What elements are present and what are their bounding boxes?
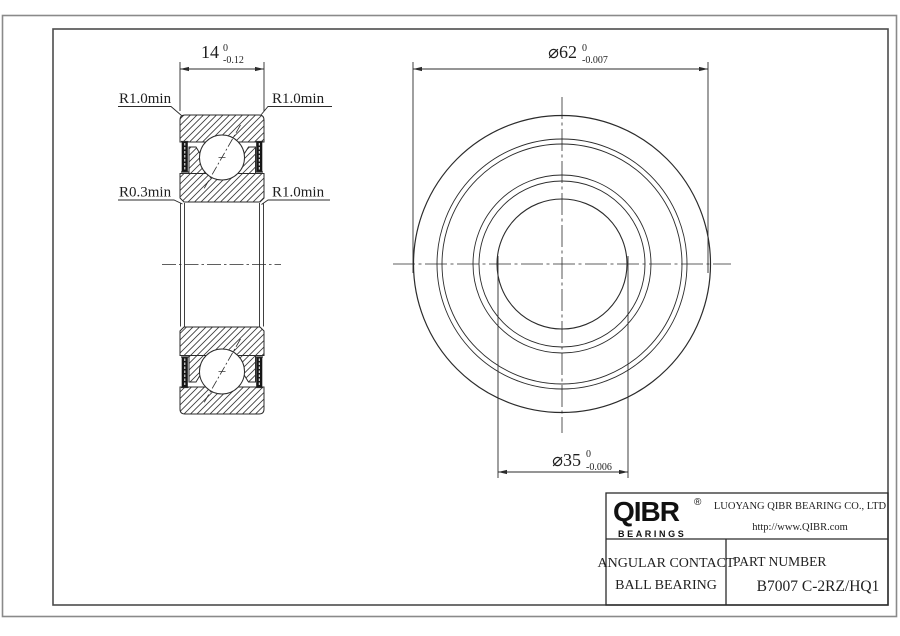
drawing-sheet: 14 0 -0.12 ⌀62 0 -0.007 ⌀35 0 -0.006 R1.… — [0, 0, 900, 636]
dim-outer-diameter-tol-lower: -0.007 — [582, 55, 608, 66]
dim-outer-diameter — [413, 62, 708, 273]
radius-label-mid-left: R0.3min — [119, 185, 172, 201]
bearing-technical-drawing: 14 0 -0.12 ⌀62 0 -0.007 ⌀35 0 -0.006 R1.… — [0, 0, 900, 636]
section-view — [162, 115, 281, 414]
dim-bore-diameter-tol-lower: -0.006 — [586, 462, 612, 473]
front-view — [393, 97, 731, 433]
dim-width-text: 14 — [201, 42, 219, 62]
registered-trademark-icon: ® — [694, 497, 702, 508]
logo-subtext: BEARINGS — [618, 529, 686, 539]
seal-left-top — [181, 142, 189, 173]
radius-label-mid-right: R1.0min — [272, 185, 325, 201]
seal-left-bottom — [181, 357, 189, 388]
dim-bore-diameter — [498, 256, 628, 478]
dim-outer-diameter-tol-upper: 0 — [582, 43, 587, 54]
company-url: http://www.QIBR.com — [752, 522, 848, 533]
drawing-frame — [53, 29, 888, 605]
radius-label-top-right: R1.0min — [272, 91, 325, 107]
dim-bore-diameter-text: ⌀35 — [552, 450, 581, 470]
seal-right-bottom — [256, 357, 264, 388]
dim-width-tol-upper: 0 — [223, 43, 228, 54]
part-number-value: B7007 C-2RZ/HQ1 — [757, 578, 880, 595]
product-type-line1: ANGULAR CONTACT — [598, 556, 735, 571]
seal-right-top — [256, 142, 264, 173]
dim-outer-diameter-text: ⌀62 — [548, 42, 577, 62]
dim-width — [180, 62, 264, 111]
dim-bore-diameter-tol-upper: 0 — [586, 449, 591, 460]
logo-text: QIBR — [613, 496, 680, 527]
company-name: LUOYANG QIBR BEARING CO., LTD — [714, 501, 887, 512]
dim-width-tol-lower: -0.12 — [223, 55, 244, 66]
product-type-line2: BALL BEARING — [615, 578, 717, 593]
part-number-label: PART NUMBER — [733, 554, 826, 569]
radius-label-top-left: R1.0min — [119, 91, 172, 107]
